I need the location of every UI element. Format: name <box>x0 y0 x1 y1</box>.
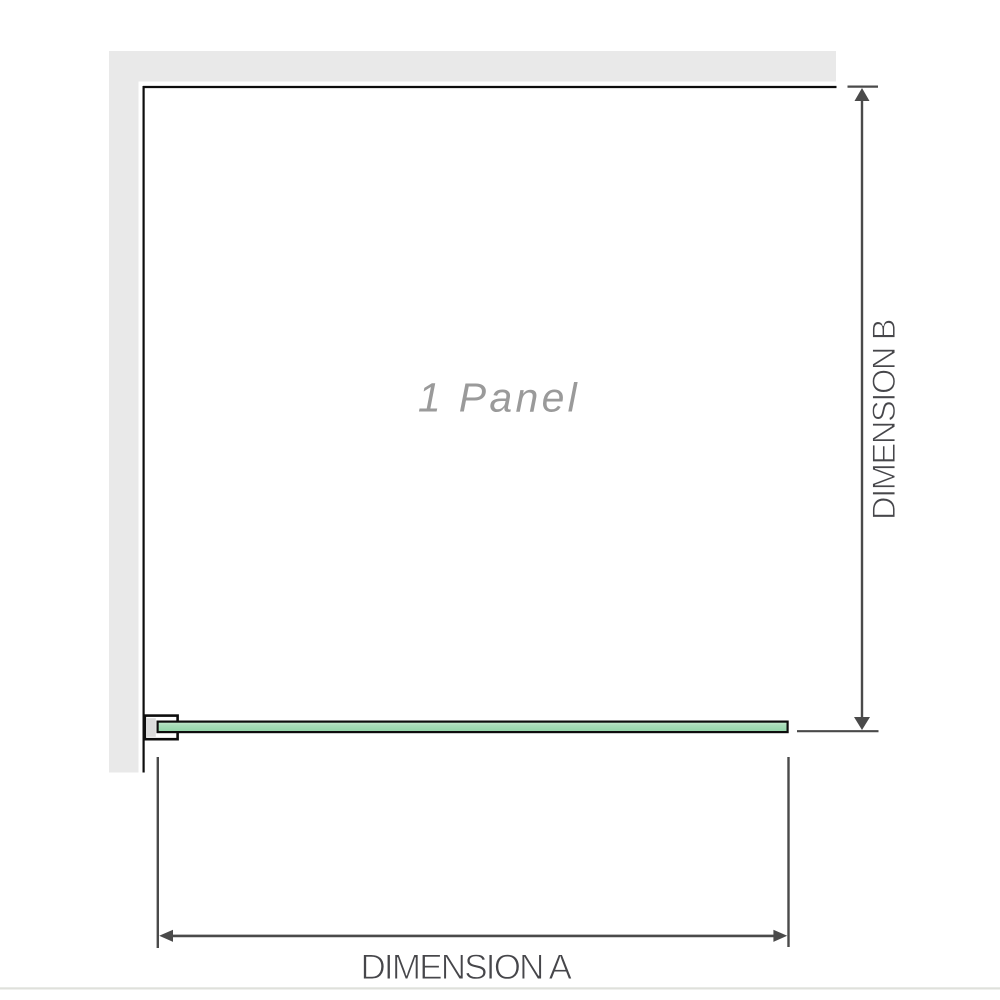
svg-text:DIMENSION A: DIMENSION A <box>360 948 572 987</box>
svg-text:1 Panel: 1 Panel <box>418 375 580 421</box>
svg-text:DIMENSION B: DIMENSION B <box>866 320 902 520</box>
